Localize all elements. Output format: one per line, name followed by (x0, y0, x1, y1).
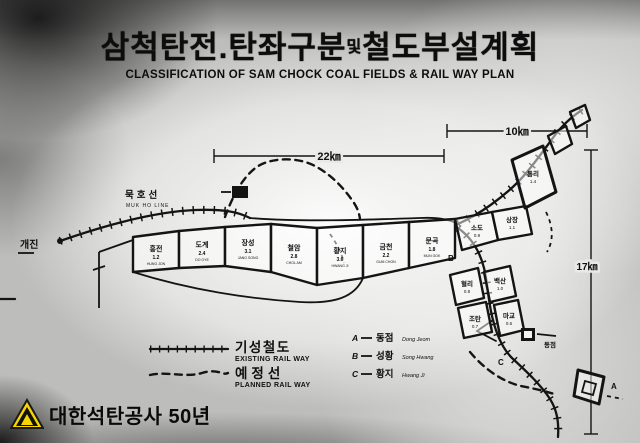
dimension-label-10km: 10㎞ (505, 125, 528, 138)
block-name: 혈리 (461, 279, 473, 288)
block-number: 3.1 (245, 249, 252, 255)
block-name: 도계 (196, 240, 209, 249)
block-number: 0.6 (506, 321, 513, 326)
legend-planned-symbol (150, 371, 228, 375)
block-name: 황지 (334, 246, 347, 255)
watermark: 대한석탄공사 50년 (10, 398, 211, 430)
block-roman: GUM CHON (376, 260, 396, 264)
point-letter-b: B (448, 254, 454, 263)
block-name: 조탄 (469, 314, 481, 323)
station-box-inner (524, 331, 532, 338)
legend-existing-english: EXISTING RAIL WAY (235, 356, 310, 363)
block-number: 0.8 (464, 289, 471, 294)
block-name: 철암 (288, 243, 301, 252)
coal-block (548, 126, 572, 154)
legend-railways: 기성철도 EXISTING RAIL WAY 예정선 PLANNED RAIL … (150, 340, 311, 389)
railway-line-label: 묵호선 MUK HO LINE (125, 189, 170, 209)
station-marker-east: 동점 (521, 328, 556, 349)
marker-korean: 동점 (376, 332, 393, 344)
dimension-belt-width: 22㎞ (214, 149, 444, 163)
marker-roman: Hwang Ji (402, 373, 425, 379)
dimension-label-22km: 22㎞ (317, 150, 340, 163)
block-number: 0.9 (474, 233, 481, 238)
block-number: 0.7 (472, 324, 479, 329)
marker-letter: C (352, 369, 359, 379)
legend-existing-korean: 기성철도 (235, 340, 291, 355)
block-roman: CHOL AM (286, 261, 302, 265)
station-label: 동점 (544, 340, 556, 349)
block-name: 소도 (471, 224, 483, 232)
block-number: 2.8 (291, 254, 298, 260)
block-number: 1.2 (153, 255, 160, 261)
town-marker-icon (232, 186, 248, 198)
point-letter-a: A (611, 382, 617, 391)
dimension-label-17km: 17㎞ (576, 261, 597, 273)
block-number: 2.2 (383, 253, 390, 259)
marker-korean: 성황 (376, 350, 394, 362)
photo-background: 삼척탄전.탄좌구분및철도부설계획 CLASSIFICATION OF SAM C… (0, 0, 640, 443)
block-roman: MUN GOK (424, 254, 441, 258)
block-roman: JANG SONG (238, 256, 259, 260)
station-label-west: 개진 (20, 238, 38, 251)
coal-field-map: 22㎞ 10㎞ 17㎞ (0, 0, 640, 443)
point-letter-c: C (498, 358, 504, 367)
block-number: 2.4 (199, 251, 206, 257)
railway-name-korean: 묵호선 (125, 189, 160, 201)
block-number: 3.6 (337, 257, 344, 263)
block-name: 백산 (494, 276, 506, 285)
block-roman: HWANG JI (332, 264, 349, 268)
marker-letter: A (351, 333, 358, 343)
block-name: 상장 (506, 215, 518, 224)
legend-planned-korean: 예정선 (235, 365, 284, 381)
korea-coal-corp-logo-icon (10, 398, 44, 430)
block-name: 금천 (380, 242, 393, 251)
block-number: 1.1 (509, 225, 516, 230)
coal-block (317, 225, 363, 285)
block-roman: HUNG JON (147, 262, 166, 266)
planned-line-stub (607, 396, 623, 399)
coal-block (574, 370, 604, 404)
block-name: 마교 (503, 311, 515, 320)
block-name: 통리 (527, 169, 539, 178)
block-name: 문곡 (426, 237, 439, 245)
railway-terminus-dot (57, 238, 63, 244)
marker-roman: Song Hwang (402, 355, 434, 361)
legend-planned-english: PLANNED RAIL WAY (235, 382, 311, 389)
block-number: 1.0 (497, 286, 504, 291)
block-name: 장성 (242, 238, 255, 247)
block-number: 1.4 (530, 179, 537, 184)
belt-west-tail (93, 240, 133, 308)
west-station: 개진 (0, 238, 38, 299)
block-name: 흥전 (150, 244, 163, 253)
block-number: 1.8 (429, 247, 436, 253)
marker-letter: B (352, 351, 358, 361)
railway-name-english: MUK HO LINE (126, 203, 170, 209)
planned-line-east (546, 212, 552, 252)
coal-block (225, 224, 271, 272)
marker-roman: Dong Jeom (402, 337, 431, 343)
town-marker (221, 186, 248, 198)
planned-railway-lines (225, 159, 623, 399)
legend-markers: A 동점 Dong Jeom B 성황 Song Hwang C 황지 Hwan… (351, 332, 434, 380)
watermark-text: 대한석탄공사 50년 (49, 400, 211, 429)
coal-block-southeast (574, 370, 604, 404)
marker-korean: 황지 (376, 368, 393, 380)
coal-block-cluster-east: 소도 0.9 상장 1.1 통리 1.4 혈리 0.8 백산 1.0 조탄 0.… (450, 105, 590, 338)
block-roman: DO GYE (195, 258, 209, 262)
station-leader-line (537, 334, 556, 336)
